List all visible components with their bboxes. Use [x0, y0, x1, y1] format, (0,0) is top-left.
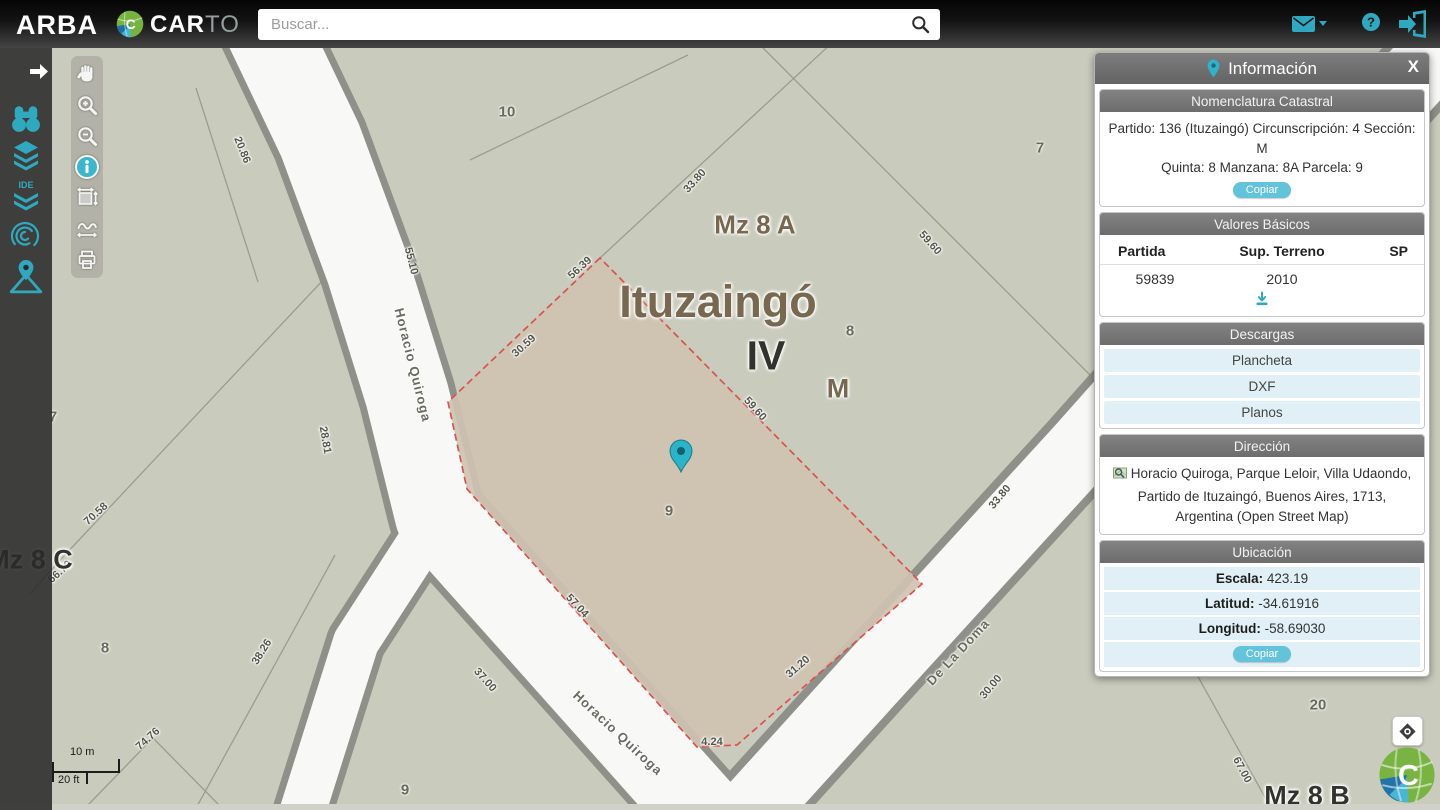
scale-imperial-label: 20 ft	[58, 774, 79, 786]
arba-logo: ARBA	[16, 10, 98, 41]
info-tool-button[interactable]	[74, 154, 100, 180]
zoom-out-icon	[75, 124, 99, 148]
sup-terreno-value: 2010	[1200, 271, 1364, 287]
nomenclatura-line1: Partido: 136 (Ituzaingó) Circunscripción…	[1106, 119, 1418, 158]
download-dxf-link[interactable]: DXF	[1104, 375, 1420, 398]
latitud-row: Latitud: -34.61916	[1104, 592, 1420, 617]
fingerprint-icon	[9, 220, 43, 254]
map-toolbar	[71, 56, 103, 278]
left-sidebar: IDE	[0, 48, 52, 810]
nomenclatura-line2: Quinta: 8 Manzana: 8A Parcela: 9	[1106, 158, 1418, 178]
valores-row: 59839 2010	[1100, 265, 1424, 289]
escala-row: Escala: 423.19	[1104, 567, 1420, 592]
valores-header: Valores Básicos	[1100, 213, 1424, 235]
search-box	[258, 9, 940, 40]
measure-distance-button[interactable]	[74, 216, 100, 242]
descargas-header: Descargas	[1100, 323, 1424, 345]
zoom-out-button[interactable]	[74, 123, 100, 149]
longitud-row: Longitud: -58.69030	[1104, 617, 1420, 642]
svg-text:IDE: IDE	[18, 180, 33, 190]
osm-map-icon	[1113, 466, 1127, 486]
ide-layers-icon: IDE	[10, 179, 42, 213]
ubicacion-header: Ubicación	[1100, 541, 1424, 563]
fingerprint-button[interactable]	[9, 220, 43, 259]
logout-button[interactable]	[1398, 9, 1428, 44]
escala-value: 423.19	[1263, 571, 1308, 586]
copy-nomenclatura-button[interactable]: Copiar	[1233, 182, 1291, 198]
pin-icon	[1207, 59, 1220, 78]
carto-wordmark: CARTO	[150, 11, 240, 39]
info-panel-header: Información X	[1095, 53, 1429, 84]
carto-watermark-logo: C	[1378, 746, 1436, 809]
map-pin-location-icon	[8, 259, 44, 295]
ide-layers-button[interactable]: IDE	[10, 179, 42, 218]
close-button[interactable]: X	[1408, 57, 1419, 77]
svg-text:C: C	[1398, 760, 1419, 792]
scale-bar: 10 m 20 ft	[44, 750, 164, 796]
nomenclatura-section: Nomenclatura Catastral Partido: 136 (Itu…	[1099, 89, 1425, 207]
info-icon	[74, 154, 100, 180]
scale-metric-label: 10 m	[70, 746, 94, 758]
map-bottom-edge	[0, 804, 1440, 810]
copy-ubicacion-button[interactable]: Copiar	[1233, 646, 1291, 662]
download-valores-button[interactable]	[1100, 289, 1424, 316]
top-bar: ARBA C CARTO	[0, 0, 1440, 48]
valores-section: Valores Básicos Partida Sup. Terreno SP …	[1099, 212, 1425, 317]
layers-icon	[10, 140, 42, 172]
direccion-section: Dirección Horacio Quiroga, Parque Leloir…	[1099, 434, 1425, 535]
layers-button[interactable]	[10, 140, 42, 177]
col-sup-terreno: Sup. Terreno	[1200, 243, 1364, 259]
carto-logo-icon: C	[116, 10, 144, 43]
arrow-right-icon	[28, 63, 50, 80]
binoculars-icon	[9, 103, 43, 133]
sp-value	[1364, 271, 1414, 287]
ubicacion-section: Ubicación Escala: 423.19 Latitud: -34.61…	[1099, 540, 1425, 672]
messages-button[interactable]	[1292, 15, 1328, 38]
sidebar-expand-button[interactable]	[28, 63, 50, 85]
locate-parcel-button[interactable]	[8, 259, 44, 300]
measure-area-button[interactable]	[74, 185, 100, 211]
info-panel: Información X Nomenclatura Catastral Par…	[1094, 52, 1430, 677]
zoom-in-icon	[75, 93, 99, 117]
locate-me-button[interactable]	[1392, 716, 1423, 746]
partida-value: 59839	[1110, 271, 1200, 287]
measure-distance-icon	[75, 217, 99, 241]
measure-area-icon	[75, 186, 99, 210]
help-icon: ?	[1361, 12, 1381, 32]
compass-icon	[1398, 722, 1417, 741]
hand-icon	[75, 62, 99, 86]
longitud-value: -58.69030	[1261, 621, 1326, 636]
printer-icon	[75, 248, 99, 272]
help-button[interactable]: ?	[1361, 12, 1381, 37]
download-plancheta-link[interactable]: Plancheta	[1104, 349, 1420, 372]
latitud-value: -34.61916	[1254, 596, 1319, 611]
exit-door-icon	[1398, 9, 1428, 39]
print-button[interactable]	[74, 247, 100, 273]
zoom-in-button[interactable]	[74, 92, 100, 118]
app-root: 20.86 55.10 56.39 30.59 33.80 59.60 59.6…	[0, 0, 1440, 810]
col-sp: SP	[1364, 243, 1414, 259]
descargas-section: Descargas Plancheta DXF Planos	[1099, 322, 1425, 429]
direccion-text: Horacio Quiroga, Parque Leloir, Villa Ud…	[1131, 466, 1411, 524]
download-icon	[1254, 291, 1270, 307]
search-parcels-button[interactable]	[9, 103, 43, 138]
pan-tool-button[interactable]	[74, 61, 100, 87]
search-input[interactable]	[258, 9, 940, 40]
col-partida: Partida	[1110, 243, 1200, 259]
svg-text:C: C	[126, 16, 136, 32]
panel-title: Información	[1228, 59, 1317, 79]
svg-text:?: ?	[1367, 15, 1375, 30]
nomenclatura-header: Nomenclatura Catastral	[1100, 90, 1424, 112]
download-planos-link[interactable]: Planos	[1104, 401, 1420, 424]
search-icon[interactable]	[911, 15, 930, 39]
mail-icon	[1292, 15, 1328, 33]
direccion-header: Dirección	[1100, 435, 1424, 457]
